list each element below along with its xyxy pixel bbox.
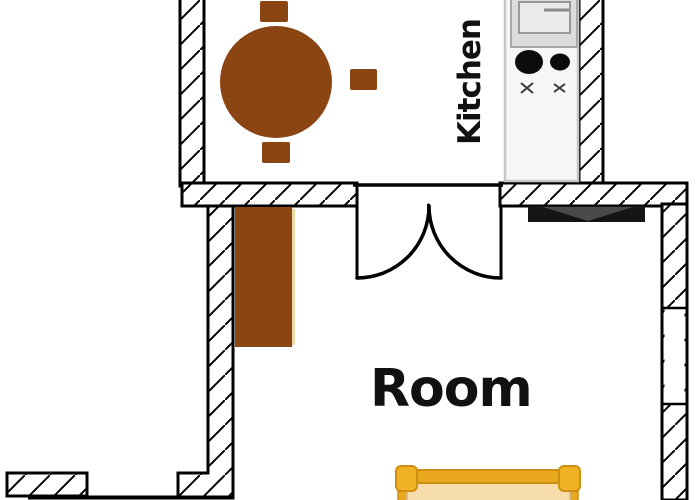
window-opening: [665, 308, 685, 404]
kitchen-label: Kitchen: [455, 2, 495, 162]
stove-burner-small: [550, 54, 570, 71]
floor-plan: Kitchen Room: [0, 0, 700, 500]
door-swing-right: [429, 206, 501, 278]
bed-post-left: [396, 466, 417, 491]
bed-post-right: [559, 466, 580, 491]
wall-middle-left-segment: [182, 183, 357, 206]
wardrobe: [235, 207, 292, 347]
room-label: Room: [370, 363, 515, 415]
wall-dining-left: [180, 0, 204, 186]
wall-kitchen-right: [579, 0, 603, 186]
wall-middle-right-segment: [500, 183, 687, 206]
chair-right: [350, 69, 377, 90]
chair-top: [260, 1, 288, 22]
chair-bottom: [262, 142, 290, 163]
stove-burner-large: [515, 50, 543, 74]
floor-plan-drawing: [0, 0, 700, 500]
door-swing-left: [357, 206, 429, 278]
sink-basin: [519, 2, 570, 33]
wall-room-left: [178, 206, 233, 498]
bed-headboard: [403, 470, 573, 483]
wall-bottom-left-segment: [7, 473, 87, 496]
dining-table: [220, 26, 332, 138]
